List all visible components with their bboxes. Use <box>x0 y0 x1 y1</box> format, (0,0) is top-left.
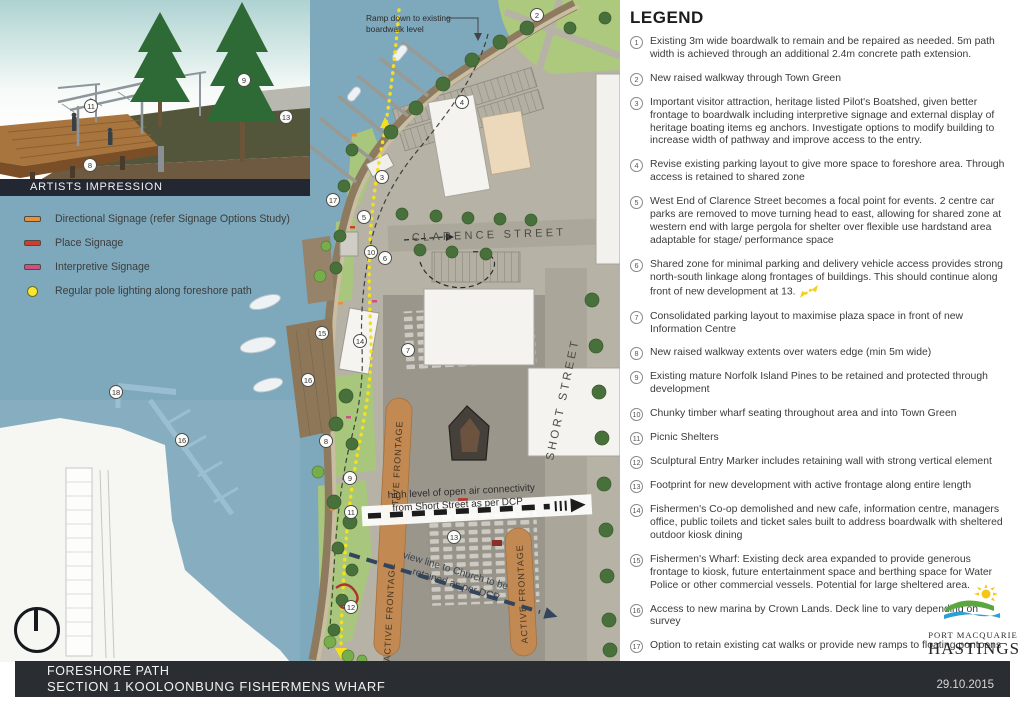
legend-item-number: 2 <box>630 73 643 86</box>
map-marker-11: 11 <box>84 99 98 113</box>
title-block-bar: FORESHORE PATH SECTION 1 KOOLOONBUNG FIS… <box>15 661 1010 697</box>
legend-panel: LEGEND 1Existing 3m wide boardwalk to re… <box>620 0 1024 662</box>
legend-item-number: 11 <box>630 432 643 445</box>
legend-item-number: 5 <box>630 196 643 209</box>
map-marker-9: 9 <box>237 73 251 87</box>
legend-item-number: 16 <box>630 604 643 617</box>
svg-text:Ramp down to existing: Ramp down to existing <box>366 13 451 23</box>
legend-item-4: 4Revise existing parking layout to give … <box>630 159 1016 185</box>
legend-item-number: 13 <box>630 480 643 493</box>
legend-item-text: Existing mature Norfolk Island Pines to … <box>650 371 1006 397</box>
signage-legend-label: Regular pole lighting along foreshore pa… <box>55 285 252 297</box>
inset-caption: ARTISTS IMPRESSION <box>0 179 310 196</box>
legend-item-text: Chunky timber wharf seating throughout a… <box>650 408 957 421</box>
legend-item-6: 6Shared zone for minimal parking and del… <box>630 259 1016 300</box>
council-logo-icon <box>938 584 1008 624</box>
yellow-dashed-arrow-icon <box>799 284 819 299</box>
legend-item-number: 9 <box>630 371 643 384</box>
site-plan-map: ACTIVE FRONTAGE ACTIVE FRONTAGE ACTIVE F… <box>0 0 620 662</box>
sheet-title-line2: SECTION 1 KOOLOONBUNG FISHERMENS WHARF <box>47 679 385 694</box>
signage-legend-label: Interpretive Signage <box>55 261 150 273</box>
signage-legend-item: Interpretive Signage <box>24 261 290 273</box>
legend-item-14: 14Fishermen's Co-op demolished and new c… <box>630 504 1016 543</box>
legend-item-number: 10 <box>630 408 643 421</box>
sheet-title-line1: FORESHORE PATH <box>47 664 170 678</box>
legend-item-3: 3Important visitor attraction, heritage … <box>630 97 1016 149</box>
signage-legend: Directional Signage (refer Signage Optio… <box>24 213 290 297</box>
legend-item-number: 17 <box>630 640 643 653</box>
legend-item-text: New raised walkway through Town Green <box>650 73 841 86</box>
plan-sheet: ACTIVE FRONTAGE ACTIVE FRONTAGE ACTIVE F… <box>0 0 1024 724</box>
signage-dash-icon <box>24 240 41 246</box>
north-arrow-icon <box>14 607 60 653</box>
legend-item-number: 7 <box>630 311 643 324</box>
signage-legend-item: Place Signage <box>24 237 290 249</box>
legend-item-number: 12 <box>630 456 643 469</box>
signage-legend-item: Regular pole lighting along foreshore pa… <box>24 285 290 297</box>
legend-item-text: Consolidated parking layout to maximise … <box>650 311 1006 337</box>
legend-item-10: 10Chunky timber wharf seating throughout… <box>630 408 1016 421</box>
signage-dash-icon <box>24 264 41 270</box>
legend-item-number: 15 <box>630 554 643 567</box>
artists-impression-inset: 119138 ARTISTS IMPRESSION <box>0 0 310 196</box>
legend-item-number: 4 <box>630 159 643 172</box>
legend-item-text: Footprint for new development with activ… <box>650 480 971 493</box>
map-marker-8: 8 <box>83 158 97 172</box>
legend-item-text: New raised walkway extents over waters e… <box>650 347 931 360</box>
logo-text-line2: HASTINGS <box>928 639 1018 659</box>
legend-item-1: 1Existing 3m wide boardwalk to remain an… <box>630 36 1016 62</box>
svg-text:boardwalk level: boardwalk level <box>366 24 424 34</box>
legend-item-number: 14 <box>630 504 643 517</box>
signage-legend-item: Directional Signage (refer Signage Optio… <box>24 213 290 225</box>
legend-item-5: 5West End of Clarence Street becomes a f… <box>630 196 1016 248</box>
legend-item-text: Existing 3m wide boardwalk to remain and… <box>650 36 1006 62</box>
short-street-road <box>545 268 587 662</box>
signage-legend-label: Place Signage <box>55 237 123 249</box>
legend-item-11: 11Picnic Shelters <box>630 432 1016 445</box>
legend-item-8: 8New raised walkway extents over waters … <box>630 347 1016 360</box>
signage-dash-icon <box>24 216 41 222</box>
legend-item-text: Fishermen's Co-op demolished and new caf… <box>650 504 1006 543</box>
legend-item-7: 7Consolidated parking layout to maximise… <box>630 311 1016 337</box>
legend-item-number: 8 <box>630 347 643 360</box>
legend-item-12: 12Sculptural Entry Marker includes retai… <box>630 456 1016 469</box>
legend-item-number: 6 <box>630 259 643 272</box>
parking-rows-clarence <box>432 252 520 282</box>
council-logo: PORT MACQUARIE HASTINGS <box>928 584 1018 659</box>
sheet-date: 29.10.2015 <box>936 679 994 691</box>
legend-title: LEGEND <box>630 8 1016 28</box>
legend-item-9: 9Existing mature Norfolk Island Pines to… <box>630 371 1016 397</box>
inset-marker-layer: 119138 <box>0 0 310 196</box>
map-marker-13: 13 <box>279 110 293 124</box>
legend-item-13: 13Footprint for new development with act… <box>630 480 1016 493</box>
legend-item-text: Important visitor attraction, heritage l… <box>650 97 1006 149</box>
legend-item-text: West End of Clarence Street becomes a fo… <box>650 196 1006 248</box>
lighting-dot-icon <box>27 286 38 297</box>
legend-item-text: Shared zone for minimal parking and deli… <box>650 259 1006 300</box>
legend-item-number: 3 <box>630 97 643 110</box>
legend-item-number: 1 <box>630 36 643 49</box>
legend-item-text: Sculptural Entry Marker includes retaini… <box>650 456 992 469</box>
signage-legend-label: Directional Signage (refer Signage Optio… <box>55 213 290 225</box>
legend-item-2: 2New raised walkway through Town Green <box>630 73 1016 86</box>
legend-item-text: Revise existing parking layout to give m… <box>650 159 1006 185</box>
legend-item-text: Picnic Shelters <box>650 432 719 445</box>
